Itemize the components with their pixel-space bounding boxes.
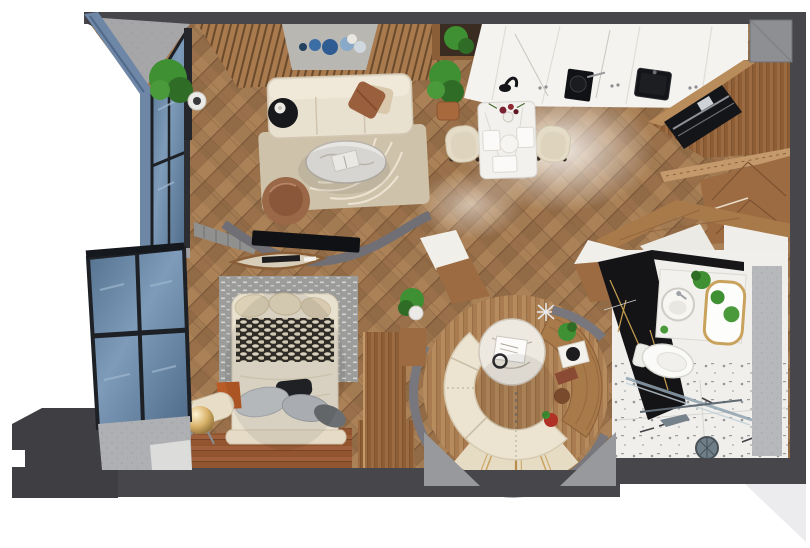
kitchen-sink — [634, 68, 672, 100]
right-wall — [790, 12, 806, 482]
dining-chair-left — [444, 124, 482, 165]
sill-highlight — [150, 440, 192, 470]
white-pot — [409, 306, 423, 320]
leather-pouf — [262, 177, 310, 225]
wood-wardrobe-lower — [358, 420, 414, 472]
place-setting — [517, 127, 535, 148]
black-side-table — [268, 98, 298, 128]
balcony-window — [86, 246, 190, 428]
side-wood-bench — [400, 328, 426, 366]
apartment-floor-plan-render — [0, 0, 810, 548]
floor-light-flare-2 — [415, 170, 525, 240]
dining-chair-right — [534, 124, 572, 164]
vanity — [656, 268, 747, 345]
wall-notch — [10, 450, 25, 467]
floor-plan-stage — [0, 0, 810, 548]
dining-table — [478, 101, 538, 179]
black-bowl — [566, 347, 580, 361]
brown-decor — [554, 388, 570, 404]
place-setting — [483, 130, 501, 151]
bottom-wall-left — [100, 468, 430, 497]
wood-wardrobe — [364, 332, 406, 424]
place-setting — [493, 156, 518, 173]
top-wall — [84, 12, 806, 24]
exterior-shadow — [745, 484, 806, 542]
bathroom — [598, 250, 788, 462]
bottom-wall-right — [610, 458, 806, 484]
terracotta-pot — [437, 102, 459, 120]
center-bowl — [500, 135, 519, 154]
